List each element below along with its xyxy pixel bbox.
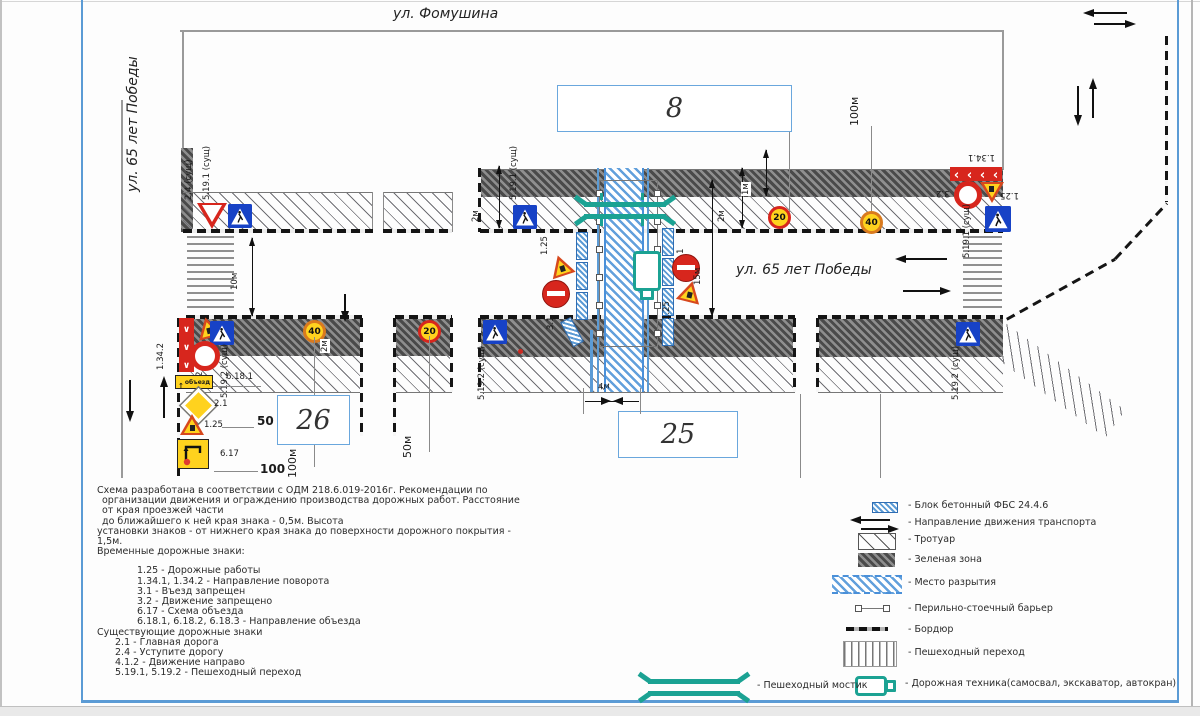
building-callout-25: 25 — [618, 411, 738, 458]
legend-crossing-swatch — [843, 641, 897, 667]
witness-line-s2 — [880, 394, 881, 478]
dim-2m-arrow-west — [499, 166, 500, 228]
legend-label: - Пешеходный переход — [908, 647, 1025, 658]
dim-road-arrow — [712, 180, 713, 316]
ped-crossing-sign-5-19-1 — [985, 206, 1011, 232]
barrier-bottom — [599, 346, 657, 347]
fbs-block — [576, 232, 588, 260]
barrier-post — [654, 330, 661, 337]
left-street-arrow-down — [129, 380, 131, 412]
south-sidewalk-4 — [818, 357, 1003, 393]
dim-4m-witness-l — [583, 388, 584, 414]
curb-north-c — [480, 229, 1003, 233]
barrier-post — [654, 218, 661, 225]
ped-crossing-sign-5-19-1 — [228, 204, 252, 228]
note-line: 5.19.1, 5.19.2 - Пешеходный переход — [97, 668, 537, 678]
legend-label: - Дорожная техника(самосвал, экскаватор,… — [905, 678, 1176, 689]
chevron-glyph — [183, 319, 190, 335]
traffic-arrow-right — [903, 290, 941, 292]
traffic-arrow-left — [905, 258, 947, 260]
turn-direction-sign-1-34-1 — [950, 167, 1002, 181]
speed-limit-40-sign: 40 — [860, 211, 883, 234]
barrier-top — [599, 180, 657, 181]
dist-100-label: 100 — [260, 464, 285, 474]
speed-limit-20-sign: 20 — [768, 206, 791, 229]
fbs-block — [576, 262, 588, 290]
dist-100m-label: 100м — [850, 97, 860, 126]
barrier-post — [654, 302, 661, 309]
legend-bridge-label: - Пешеходный мостик — [757, 680, 868, 691]
south-sidewalk-2 — [395, 356, 452, 393]
legend-sidewalk-swatch — [858, 533, 896, 550]
driveway-edge-1 — [372, 192, 373, 232]
ped-crossing-sign-5-19-1 — [513, 205, 537, 229]
ne-boundary-diag2 — [1006, 258, 1116, 321]
up-arrow-glyph — [178, 373, 184, 392]
give-way-sign-2-4 — [197, 203, 227, 229]
legend-label: - Зеленая зона — [908, 554, 982, 565]
sign-label-6181: 6.18.1 — [226, 372, 253, 382]
bridge-tick — [600, 219, 603, 226]
window-bottom-strip — [0, 706, 1200, 716]
legend-arrow-right — [861, 528, 889, 530]
window-right-line — [1191, 0, 1193, 716]
witness-line-s1 — [800, 394, 801, 478]
south-edge-dash-2 — [393, 318, 396, 436]
curb-north-b — [383, 229, 452, 233]
chevron-glyph — [980, 167, 985, 181]
chevron-glyph — [954, 167, 959, 181]
barrier-post — [596, 330, 603, 337]
dim-4m-arrow — [585, 401, 639, 402]
red-marker-dot — [518, 349, 523, 354]
dim-2m-label: 2м — [717, 210, 727, 222]
curb-south-2 — [395, 315, 452, 319]
traffic-scheme-sheet: ул. Фомушина ул. 65 лет Победы ул. 65 ле… — [0, 0, 1200, 716]
ped-bridge-icon — [584, 202, 666, 207]
window-top-line — [0, 1, 1200, 2]
traffic-arrow-right — [1094, 23, 1126, 25]
sign-label-31: 3.1 — [546, 316, 556, 330]
trench-stub — [590, 330, 593, 392]
legend-fbs-swatch — [872, 502, 898, 513]
south-edge-dash-6 — [816, 318, 819, 392]
sign-label-5191: 5.19.1 (сущ) — [509, 146, 519, 200]
legend-excavation-swatch — [832, 575, 902, 594]
south-edge-dash-5 — [793, 318, 796, 392]
barrier-post — [596, 246, 603, 253]
sign-label-617: 6.17 — [220, 449, 239, 459]
se-sidewalk-band — [984, 322, 1125, 438]
sign-label-32: 3.2 — [936, 188, 950, 198]
legend-truck-cab — [885, 680, 896, 692]
left-street-edge — [121, 100, 123, 478]
sign-label-5191: 5.19.1 (сущ) — [962, 204, 972, 258]
window-left-line — [0, 0, 2, 716]
witness-20-line — [429, 336, 430, 452]
legend-arrow-left — [860, 519, 890, 521]
fbs-block — [576, 292, 588, 320]
traffic-arrow-left — [1093, 12, 1127, 14]
curb-south-4 — [818, 315, 1003, 319]
roadworks-sign-1-25 — [180, 414, 204, 435]
detour-plate-6-18-1: объезд — [175, 375, 213, 389]
sign-label-5192: 5.19.2 (сущ) — [477, 346, 487, 400]
building-number: 26 — [296, 405, 330, 436]
curb-north-a — [183, 229, 373, 233]
legend-barrier-line — [859, 608, 885, 609]
south-edge-dash-3 — [450, 318, 453, 392]
leader-100 — [214, 471, 258, 472]
detour-scheme-sign-6-17 — [177, 439, 209, 469]
legend-curb-swatch — [846, 627, 888, 631]
block-left-edge — [182, 30, 184, 150]
driveway-edge-3 — [452, 192, 453, 232]
sign-label-1342: 1.34.2 — [156, 343, 166, 370]
legend-label: - Бордюр — [908, 624, 953, 635]
sign-label-5192: 5.19.2 (сущ) — [220, 344, 230, 398]
bridge-tick — [641, 219, 644, 226]
sign-label-5191: 5.19.1 (сущ) — [202, 146, 212, 200]
block-right-edge — [1002, 30, 1004, 170]
ped-bridge-icon — [584, 214, 666, 219]
sign-label-125: 1.25 — [1000, 190, 1019, 200]
fbs-block — [662, 318, 674, 346]
chevron-glyph — [183, 337, 190, 353]
dump-truck-cab — [640, 288, 654, 300]
dump-truck-icon — [633, 251, 661, 291]
building-number: 25 — [661, 419, 695, 450]
no-entry-sign-3-1 — [542, 280, 570, 308]
fbs-block — [662, 228, 674, 256]
street-name-left: ул. 65 лет Победы — [126, 56, 140, 192]
dim-10m-label: 10м — [230, 273, 240, 290]
frame-right-blue — [1177, 0, 1179, 702]
chevron-glyph — [183, 355, 190, 371]
witness-100m — [871, 126, 872, 214]
street-name-top: ул. Фомушина — [393, 6, 498, 22]
sign-label-24: 2.4 (сущ) — [184, 159, 194, 200]
ped-crossing-sign-5-19-2 — [956, 322, 980, 346]
worker-glyph — [990, 186, 995, 192]
dim-4m-label: 4м — [597, 381, 610, 393]
building-number: 8 — [666, 93, 683, 124]
note-line: Временные дорожные знаки: — [97, 547, 537, 557]
roadworks-sign-1-25 — [676, 278, 704, 304]
worker-glyph — [686, 291, 692, 298]
legend-label: - Перильно-стоечный барьер — [908, 603, 1053, 614]
worker-glyph — [559, 265, 566, 272]
legend-bridge-icon — [648, 679, 740, 684]
chevron-glyph — [967, 167, 972, 181]
building-callout-26: 26 — [277, 395, 350, 445]
sign-label-125: 1.25 — [540, 236, 550, 255]
roadworks-sign-1-25 — [546, 252, 575, 279]
legend-greenzone-swatch — [858, 553, 895, 567]
dim-2m-label: 2м — [471, 210, 481, 222]
street-name-center: ул. 65 лет Победы — [736, 262, 872, 278]
detour-text: объезд — [185, 379, 210, 386]
legend-label: - Направление движения транспорта — [908, 517, 1096, 528]
note-line: установки знаков - от нижнего края знака… — [97, 527, 537, 547]
dim-2m-label: 2м — [320, 339, 330, 353]
dim-arrow-down — [344, 294, 346, 312]
legend-label: - Место разрытия — [908, 577, 996, 588]
left-street-arrow-up — [163, 386, 165, 418]
ne-boundary-vertical — [1165, 36, 1168, 202]
dim-2m-arrow-east — [742, 168, 743, 228]
bridge-tick — [600, 193, 603, 200]
leader-50 — [222, 427, 254, 428]
building-callout-8: 8 — [557, 85, 792, 132]
dist-50-label: 50 — [257, 416, 274, 426]
bridge-tick — [641, 193, 644, 200]
dim-1m-label: 1м — [741, 182, 751, 196]
chevron-glyph — [993, 167, 998, 181]
legend-label: - Блок бетонный ФБС 24.4.6 — [908, 500, 1048, 511]
worker-glyph — [190, 425, 195, 431]
sign-label-5192: 5.19.2 (сущ) — [951, 346, 961, 400]
sign-label-125: 1.25 — [204, 420, 223, 430]
sign-label-21: 2.1 — [214, 399, 228, 409]
sign-label-1341: 1.34.1 — [968, 152, 995, 162]
legend-barrier-post — [855, 605, 862, 612]
legend-barrier-post — [883, 605, 890, 612]
barrier-post — [596, 274, 603, 281]
ped-crossing-sign-5-19-2 — [210, 321, 234, 345]
dist-50m-label: 50м — [403, 436, 413, 458]
south-edge-dash-1 — [360, 318, 363, 436]
legend-bridge-icon — [648, 691, 740, 696]
traffic-arrow-up — [1092, 88, 1094, 118]
ne-boundary-diag1 — [1114, 202, 1168, 260]
traffic-arrow-down — [1077, 86, 1079, 116]
ped-crossing-left — [187, 236, 234, 313]
dim-1m-arrow — [766, 150, 767, 196]
dim-10m-arrow — [252, 238, 253, 316]
north-sidewalk-b — [383, 192, 452, 232]
frame-left-blue — [81, 0, 83, 702]
leader-6181 — [213, 386, 261, 387]
witness-50m — [789, 128, 790, 212]
sign-label-125: 1.25 — [662, 301, 672, 320]
no-traffic-sign-3-2 — [190, 341, 220, 371]
barrier-post — [596, 302, 603, 309]
ped-crossing-sign-5-19-2 — [483, 320, 507, 344]
barrier-post — [654, 190, 661, 197]
dist-100m-label: 100м — [288, 449, 298, 478]
legend-label: - Тротуар — [908, 534, 955, 545]
dim-4m-witness-r — [640, 388, 641, 414]
north-c-left-dashed — [478, 168, 481, 232]
driveway-edge-2 — [383, 192, 384, 232]
frame-bottom-blue — [81, 700, 1179, 703]
scheme-notes: Схема разработана в соответствии с ОДМ 2… — [97, 486, 537, 679]
top-road-edge — [180, 30, 1003, 32]
